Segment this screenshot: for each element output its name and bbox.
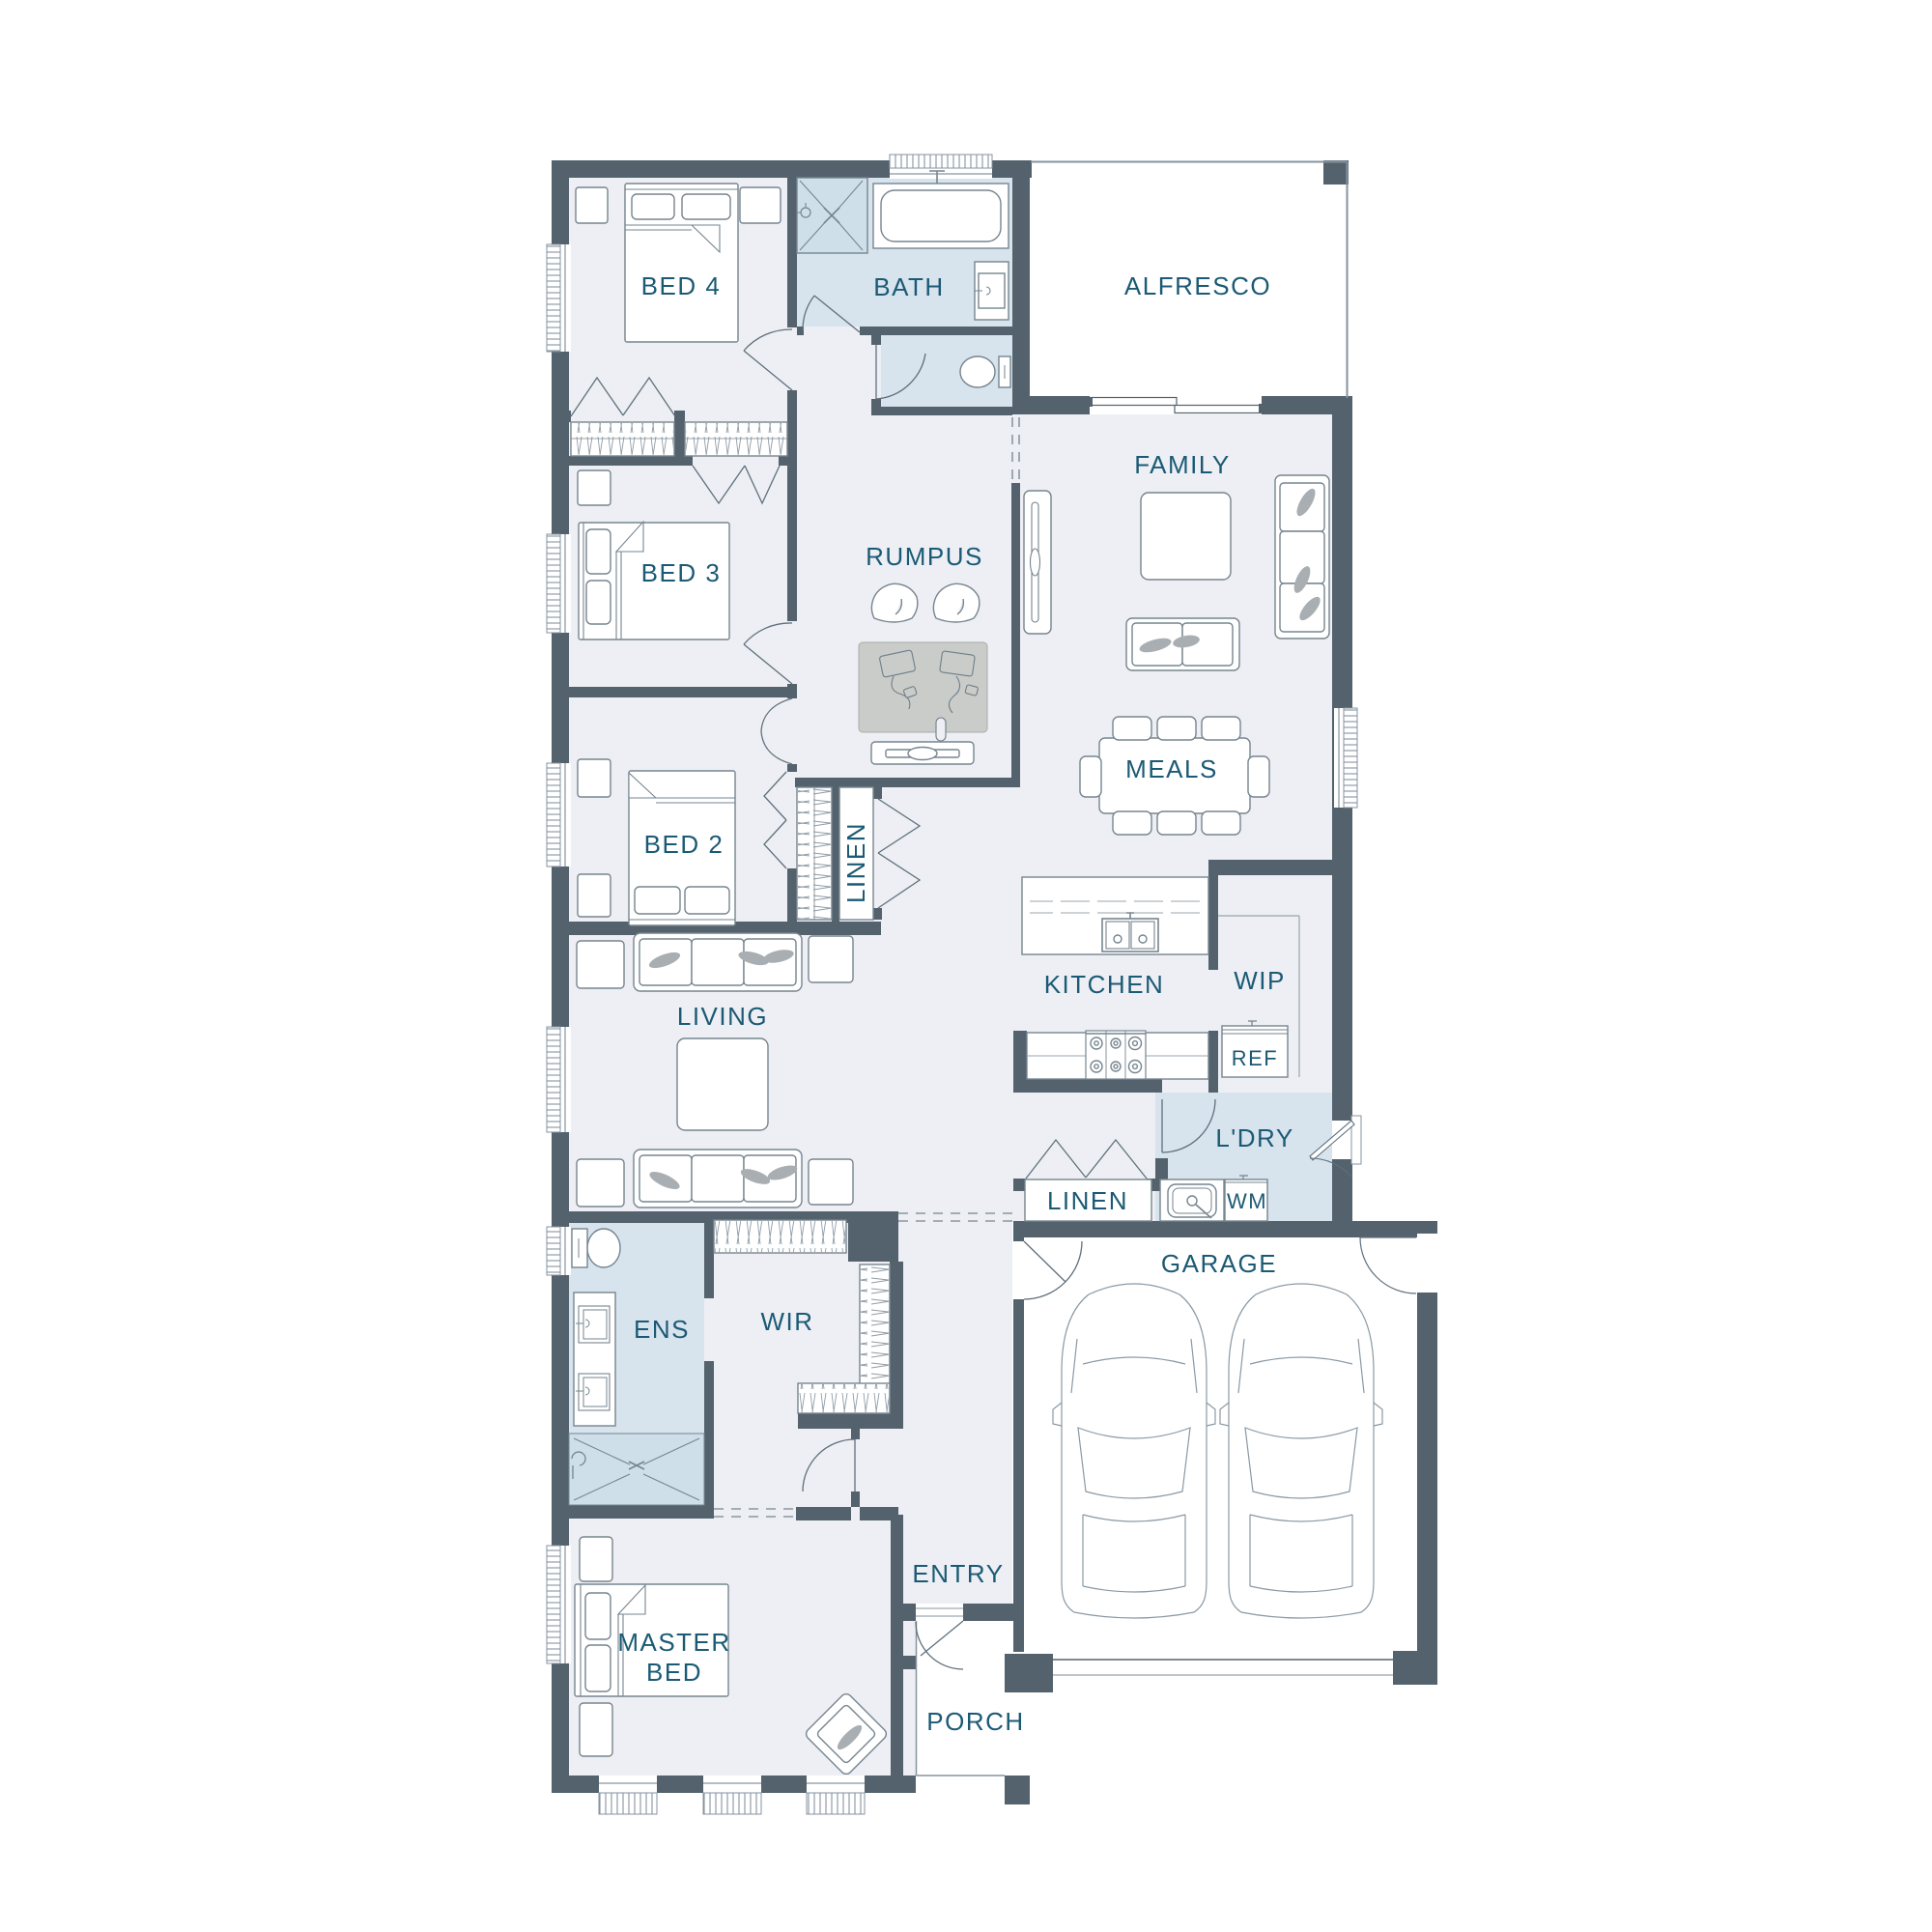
svg-text:KITCHEN: KITCHEN xyxy=(1044,970,1165,999)
svg-text:FAMILY: FAMILY xyxy=(1134,450,1231,479)
svg-text:LINEN: LINEN xyxy=(841,822,870,903)
svg-text:L'DRY: L'DRY xyxy=(1215,1123,1293,1152)
svg-text:MEALS: MEALS xyxy=(1125,754,1218,783)
svg-text:BATH: BATH xyxy=(873,272,944,301)
svg-text:ENTRY: ENTRY xyxy=(912,1559,1004,1588)
svg-text:WM: WM xyxy=(1227,1189,1267,1213)
svg-text:LINEN: LINEN xyxy=(1047,1186,1128,1215)
svg-text:LIVING: LIVING xyxy=(677,1002,768,1031)
svg-text:BED 4: BED 4 xyxy=(641,271,722,300)
svg-text:WIP: WIP xyxy=(1234,966,1286,995)
svg-text:PORCH: PORCH xyxy=(926,1707,1024,1736)
svg-text:BED: BED xyxy=(646,1658,702,1687)
svg-text:MASTER: MASTER xyxy=(617,1628,730,1657)
svg-text:ALFRESCO: ALFRESCO xyxy=(1124,271,1271,300)
svg-text:BED 2: BED 2 xyxy=(644,830,724,859)
svg-text:RUMPUS: RUMPUS xyxy=(866,542,983,571)
svg-text:REF: REF xyxy=(1232,1046,1279,1070)
svg-text:ENS: ENS xyxy=(634,1315,690,1344)
svg-text:GARAGE: GARAGE xyxy=(1161,1249,1277,1278)
svg-text:BED 3: BED 3 xyxy=(641,558,722,587)
svg-text:WIR: WIR xyxy=(760,1307,813,1336)
